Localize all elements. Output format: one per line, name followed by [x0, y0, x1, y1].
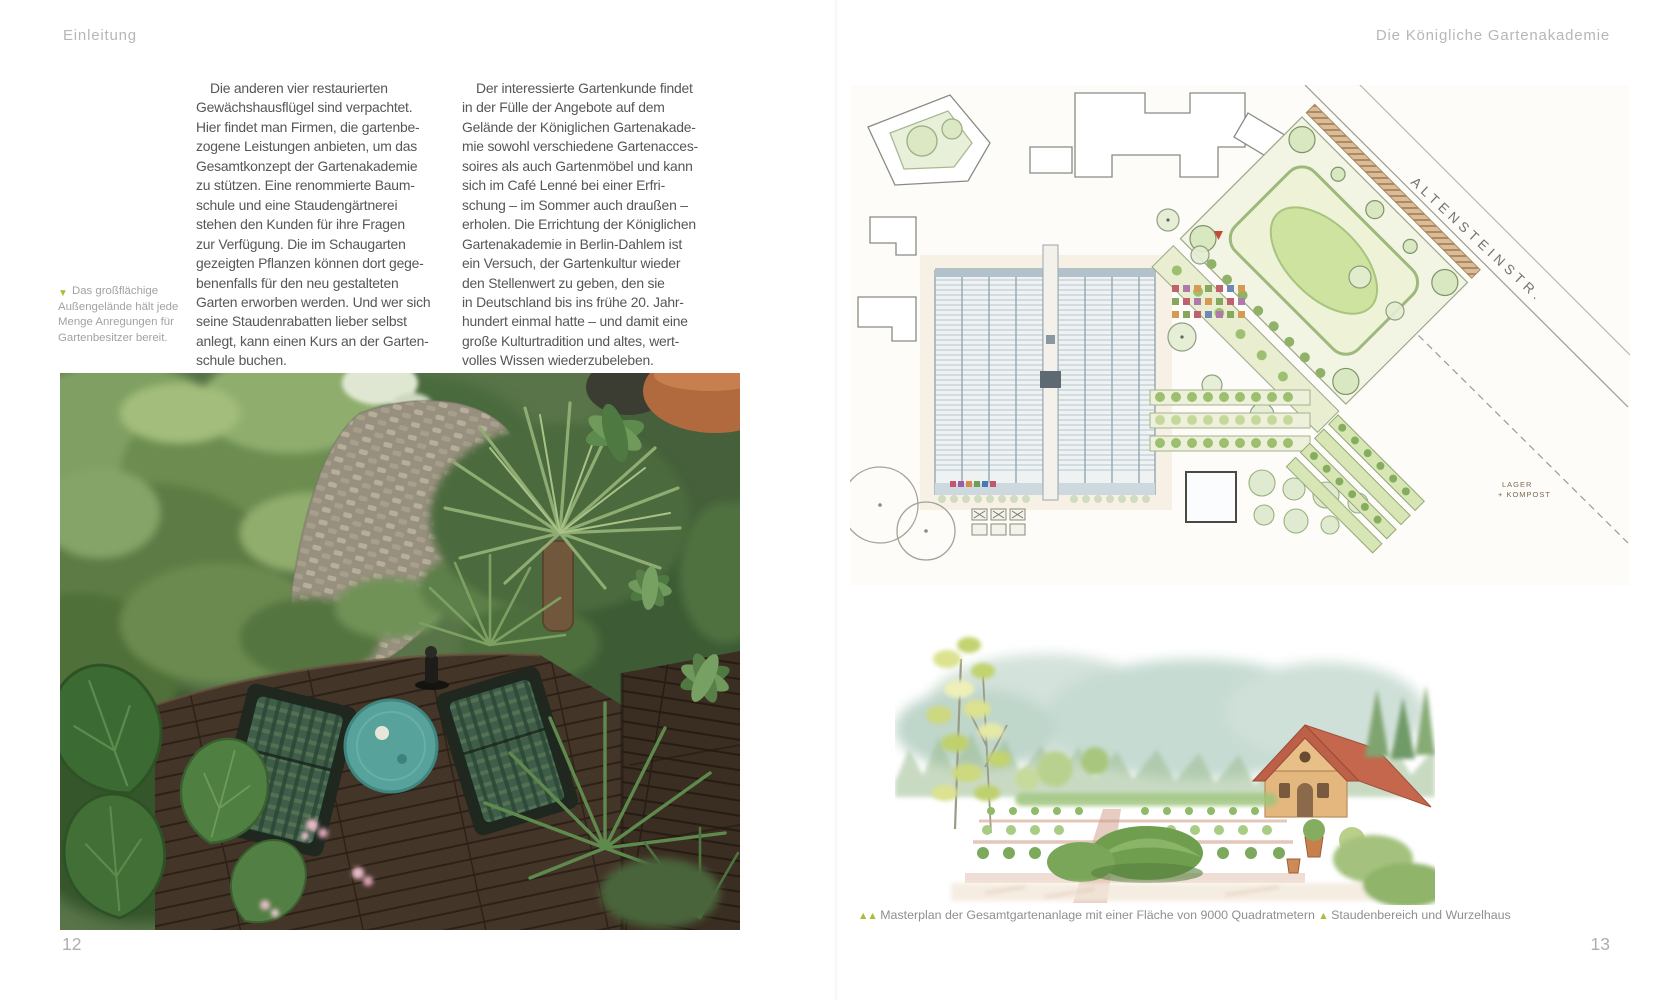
caption-text-masterplan: Masterplan der Gesamtgartenanlage mit ei…	[877, 908, 1318, 922]
running-head-right: Die Königliche Gartenakademie	[1376, 27, 1610, 44]
running-head-left: Einleitung	[63, 27, 137, 44]
gutter-shadow	[834, 0, 838, 1000]
caption-text-staudenbereich: Staudenbereich und Wurzelhaus	[1328, 908, 1511, 922]
margin-caption-text: Das großflächigeAußengelände hält jedeMe…	[58, 284, 208, 346]
pond-square	[1186, 472, 1236, 522]
masterplan-illustration: ALTENSTEINSTR.	[850, 85, 1630, 585]
body-text-column-2: Der interessierte Gartenkunde findetin d…	[462, 79, 737, 371]
garden-aerial-photo	[60, 373, 740, 930]
page-number-left: 12	[62, 934, 81, 955]
garden-photo-svg	[60, 373, 740, 930]
masterplan-svg: ALTENSTEINSTR.	[850, 85, 1630, 585]
svg-text:LAGER: LAGER	[1502, 480, 1532, 489]
plan-greenhouses	[920, 245, 1172, 510]
illustration-caption: ▲▲ Masterplan der Gesamtgartenanlage mit…	[858, 908, 1578, 922]
photo-margin-caption: ▼ Das großflächigeAußengelände hält jede…	[58, 284, 208, 346]
clipped-hedges	[1047, 826, 1203, 883]
body-text-column-1: Die anderen vier restauriertenGewächshau…	[196, 79, 456, 371]
garden-sketch-illustration	[895, 597, 1435, 905]
garden-sketch-svg	[895, 597, 1435, 905]
svg-text:+ KOMPOST: + KOMPOST	[1498, 490, 1551, 499]
triangle-up-double-icon: ▲▲	[858, 910, 877, 922]
book-spread: Einleitung Die anderen vier restaurierte…	[0, 0, 1673, 1000]
round-table	[345, 700, 437, 792]
triangle-down-icon: ▼	[58, 286, 68, 302]
triangle-up-icon: ▲	[1318, 910, 1327, 922]
page-number-right: 13	[1591, 934, 1610, 955]
